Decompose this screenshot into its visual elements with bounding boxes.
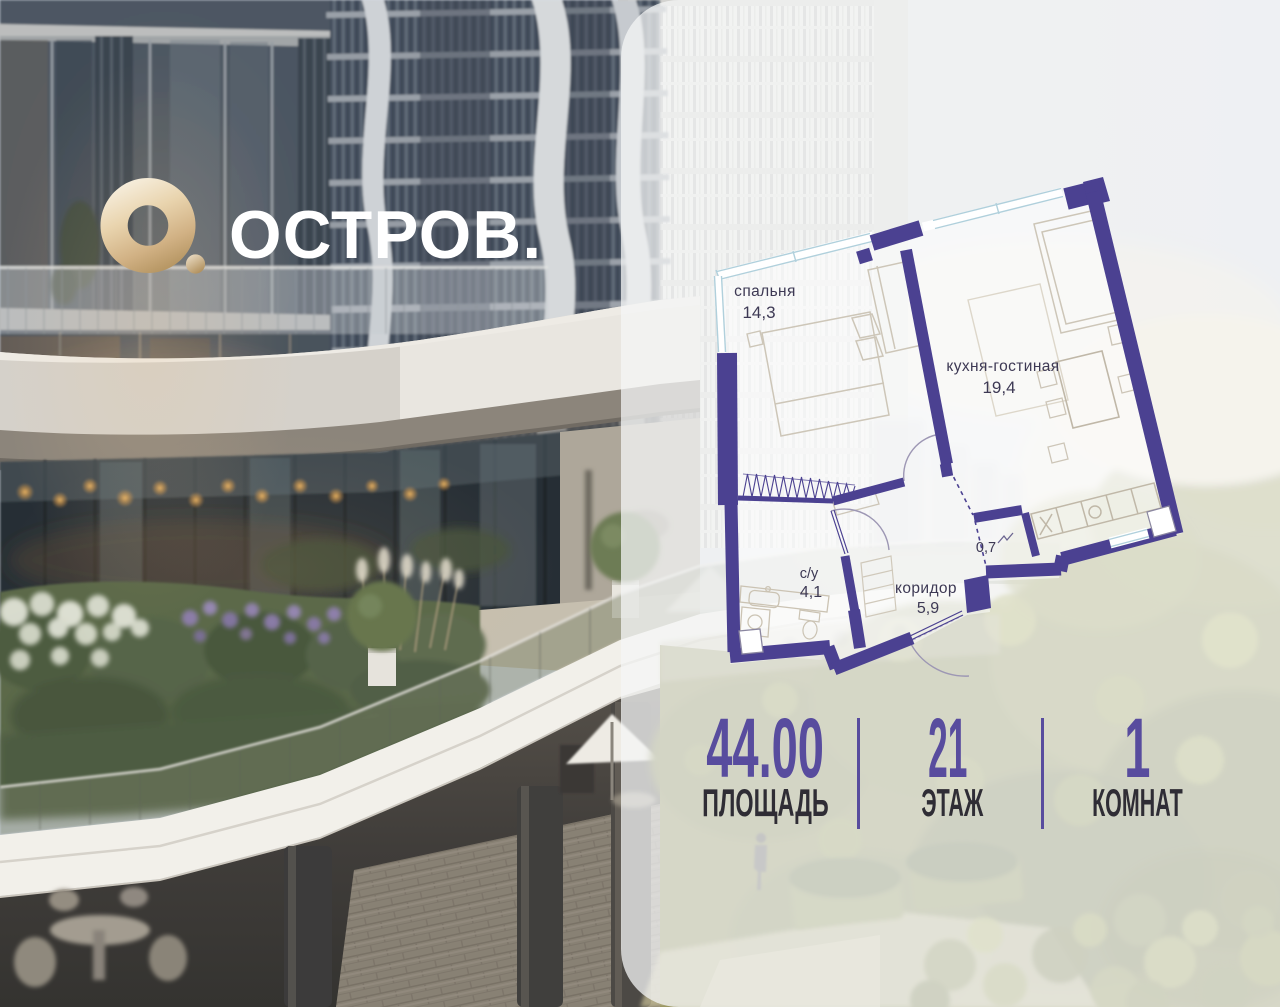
svg-text:кухня-гостиная: кухня-гостиная [946, 358, 1059, 375]
svg-text:с/у: с/у [800, 566, 819, 582]
svg-text:4,1: 4,1 [800, 584, 822, 601]
svg-text:19,4: 19,4 [982, 378, 1015, 397]
svg-text:ОСТРОВ.: ОСТРОВ. [229, 198, 542, 273]
svg-text:коридор: коридор [895, 580, 957, 597]
svg-text:14,3: 14,3 [742, 303, 775, 322]
svg-text:5,9: 5,9 [917, 600, 939, 617]
svg-text:0,7: 0,7 [976, 540, 996, 556]
svg-text:спальня: спальня [734, 283, 796, 300]
